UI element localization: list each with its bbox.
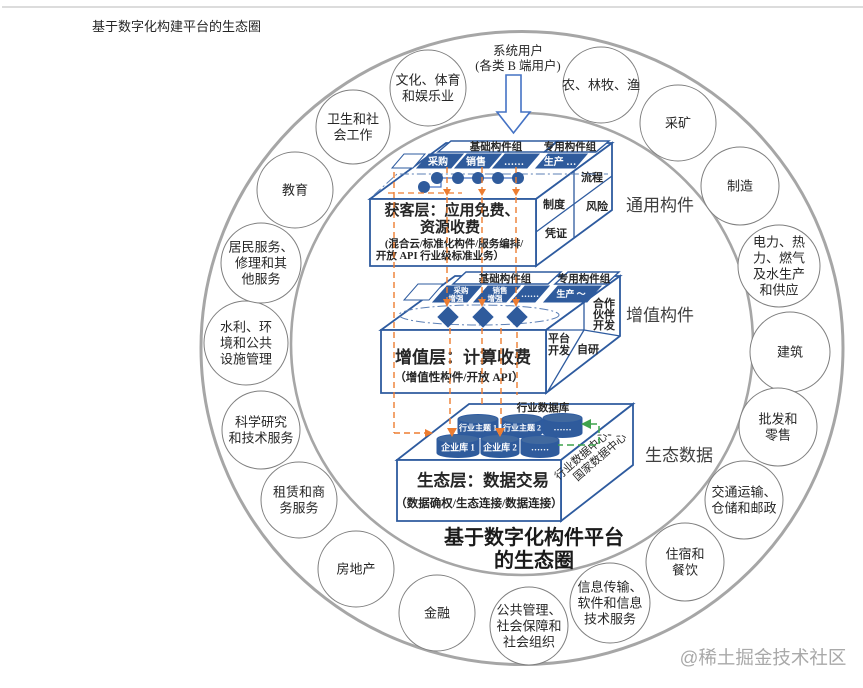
svg-text:销售: 销售 [466,155,486,168]
svg-text:专用构件组: 专用构件组 [544,140,597,153]
svg-text:开放 API 行业级标准业务）: 开放 API 行业级标准业务） [376,249,504,262]
svg-text:(各类 B 端用户): (各类 B 端用户) [475,58,560,73]
svg-text:增值层：计算收费: 增值层：计算收费 [395,347,531,367]
svg-text:及水生产: 及水生产 [753,267,805,282]
svg-text:平台: 平台 [548,331,570,345]
svg-text:资源收费: 资源收费 [420,218,480,236]
svg-text:基于数字化构建平台的生态圈: 基于数字化构建平台的生态圈 [92,19,261,34]
svg-text:企业库 2: 企业库 2 [482,442,517,453]
svg-text:仓储和邮政: 仓储和邮政 [711,501,776,516]
svg-text:卫生和社: 卫生和社 [327,112,379,127]
svg-text:技术服务: 技术服务 [584,612,636,627]
svg-text:公共管理、: 公共管理、 [496,603,561,618]
svg-text:风险: 风险 [586,199,609,213]
svg-text:境和公共: 境和公共 [220,336,272,351]
svg-text:……: …… [531,443,549,453]
svg-text:专用构件组: 专用构件组 [558,272,611,285]
svg-text:增值构件: 增值构件 [626,306,694,325]
svg-text:……: …… [504,157,524,168]
svg-text:伙伴: 伙伴 [593,307,615,321]
svg-text:行业主题 1: 行业主题 1 [458,423,497,433]
svg-text:电力、热: 电力、热 [753,235,805,250]
svg-text:居民服务、: 居民服务、 [228,240,293,255]
svg-text:通用构件: 通用构件 [626,196,694,215]
svg-text:建筑: 建筑 [777,345,803,360]
svg-text:自研: 自研 [577,342,599,356]
svg-text:@稀土掘金技术社区: @稀土掘金技术社区 [680,647,847,668]
svg-text:力、燃气: 力、燃气 [753,251,805,266]
svg-text:……: …… [554,423,572,433]
svg-text:务服务: 务服务 [279,501,318,516]
svg-text:设施管理: 设施管理 [220,352,272,367]
svg-text:制度: 制度 [543,197,566,211]
svg-text:和娱乐业: 和娱乐业 [402,89,454,104]
svg-text:交通运输、: 交通运输、 [711,485,776,500]
svg-text:教育: 教育 [282,183,308,198]
svg-text:开发: 开发 [593,318,616,332]
svg-text:基于数字化构件平台: 基于数字化构件平台 [444,525,624,549]
svg-text:行业数据库: 行业数据库 [516,401,570,414]
svg-text:信息传输、: 信息传输、 [577,580,642,595]
svg-text:凭证: 凭证 [544,226,567,240]
svg-text:软件和信息: 软件和信息 [577,596,642,611]
svg-text:水利、环: 水利、环 [220,320,272,335]
svg-text:生产 ～: 生产 ～ [556,288,585,299]
svg-text:采矿: 采矿 [665,116,691,131]
svg-text:修理和其: 修理和其 [235,256,287,271]
svg-text:科学研究: 科学研究 [235,415,287,430]
svg-text:(混合云/标准化构件/服务编排/: (混合云/标准化构件/服务编排/ [385,237,524,250]
svg-text:……: …… [521,289,539,299]
svg-text:的生态圈: 的生态圈 [494,548,574,572]
svg-text:（增值性构件/开放 API）: （增值性构件/开放 API） [394,370,523,384]
svg-text:住宿和: 住宿和 [665,547,704,562]
svg-text:开发: 开发 [548,343,571,357]
svg-text:企业库 1: 企业库 1 [440,442,475,453]
svg-text:增强: 增强 [488,293,503,303]
svg-text:餐饮: 餐饮 [672,563,698,578]
svg-text:增强: 增强 [449,293,464,303]
svg-text:制造: 制造 [727,179,753,194]
svg-text:采购: 采购 [427,155,448,168]
svg-text:农、林牧、渔: 农、林牧、渔 [562,78,640,93]
svg-text:房地产: 房地产 [336,562,375,577]
svg-text:获客层：应用免费、: 获客层：应用免费、 [384,201,519,219]
svg-text:和供应: 和供应 [759,283,798,298]
svg-text:系统用户: 系统用户 [493,43,543,58]
svg-text:社会保障和: 社会保障和 [496,619,561,634]
svg-text:会工作: 会工作 [333,128,372,143]
svg-text:流程: 流程 [581,170,603,184]
svg-text:批发和: 批发和 [758,412,797,427]
svg-text:和技术服务: 和技术服务 [228,431,293,446]
svg-text:基础构件组: 基础构件组 [469,140,523,153]
svg-text:文化、体育: 文化、体育 [395,73,460,88]
svg-text:生态层：数据交易: 生态层：数据交易 [417,470,549,490]
svg-text:他服务: 他服务 [241,272,280,287]
svg-text:合作: 合作 [593,296,615,310]
svg-text:基础构件组: 基础构件组 [478,272,532,285]
svg-text:金融: 金融 [424,606,450,621]
svg-text:（数据确权/生态连接/数据连接）: （数据确权/生态连接/数据连接） [395,496,562,510]
svg-text:零售: 零售 [765,428,791,443]
svg-text:生产 …: 生产 … [544,155,577,168]
svg-text:租赁和商: 租赁和商 [273,485,325,500]
svg-text:社会组织: 社会组织 [503,635,555,650]
svg-text:行业主题 2: 行业主题 2 [502,423,541,433]
svg-text:生态数据: 生态数据 [645,446,713,465]
